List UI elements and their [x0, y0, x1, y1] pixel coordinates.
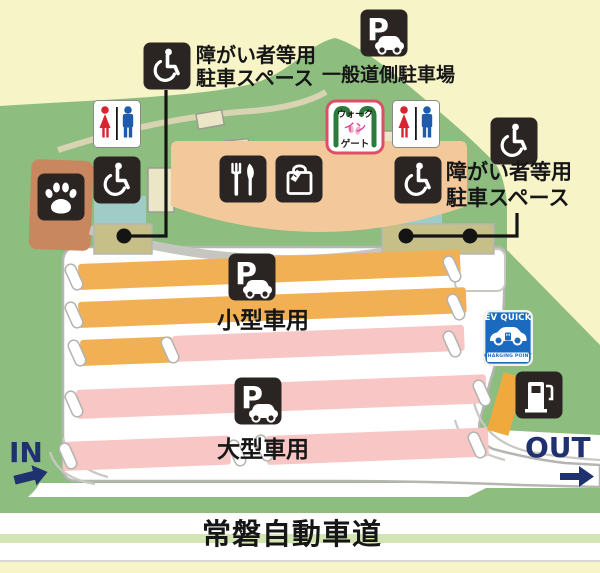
disabled-parking-label-line2: 駐車スペース	[446, 185, 572, 211]
shop-icon	[275, 155, 323, 203]
gate-label-line3: ゲート	[325, 136, 385, 150]
wheelchair-icon	[143, 42, 191, 90]
general-road-parking-label: 一般道側駐車場	[322, 60, 455, 87]
ev-sign-subtitle: CHARGING POINT	[483, 354, 533, 359]
wheelchair-icon	[394, 156, 442, 204]
large-car-area-label: 大型車用	[217, 430, 309, 464]
ev-sign-title: EV QUICK	[483, 313, 533, 323]
restroom-icon	[93, 100, 141, 148]
disabled-parking-label-right: 障がい者等用 駐車スペース	[446, 159, 572, 211]
disabled-parking-pad-right	[382, 224, 494, 254]
walk-in-gate-sign: ウォーク イン ゲート	[325, 99, 385, 155]
building-annex-left	[148, 168, 174, 212]
parking-icon: P	[228, 253, 276, 301]
restroom-icon	[392, 100, 440, 148]
small-car-area-label: 小型車用	[217, 301, 309, 335]
parking-icon: P	[360, 9, 408, 57]
paw-icon	[37, 173, 85, 221]
parking-icon: P	[234, 377, 282, 425]
fuel-icon	[515, 371, 563, 419]
disabled-parking-label-line2: 駐車スペース	[196, 67, 316, 90]
ev-charging-sign: EV QUICK CHARGING POINT	[483, 310, 533, 366]
disabled-parking-label-line1: 障がい者等用	[446, 159, 572, 185]
exit-out-label: OUT	[525, 431, 591, 464]
service-area-guide-map: P P P	[0, 0, 600, 573]
disabled-parking-label-line1: 障がい者等用	[196, 44, 316, 67]
entrance-in-label: IN	[9, 436, 43, 469]
lot-corner-island	[455, 249, 505, 291]
restaurant-icon	[219, 155, 267, 203]
wheelchair-icon	[490, 117, 538, 165]
disabled-parking-label-left: 障がい者等用 駐車スペース	[196, 44, 316, 90]
bottom-margin	[0, 562, 600, 573]
gate-label-line2: イン	[325, 119, 385, 135]
wheelchair-icon	[93, 156, 141, 204]
expressway-name-label: 常磐自動車道	[202, 511, 382, 553]
